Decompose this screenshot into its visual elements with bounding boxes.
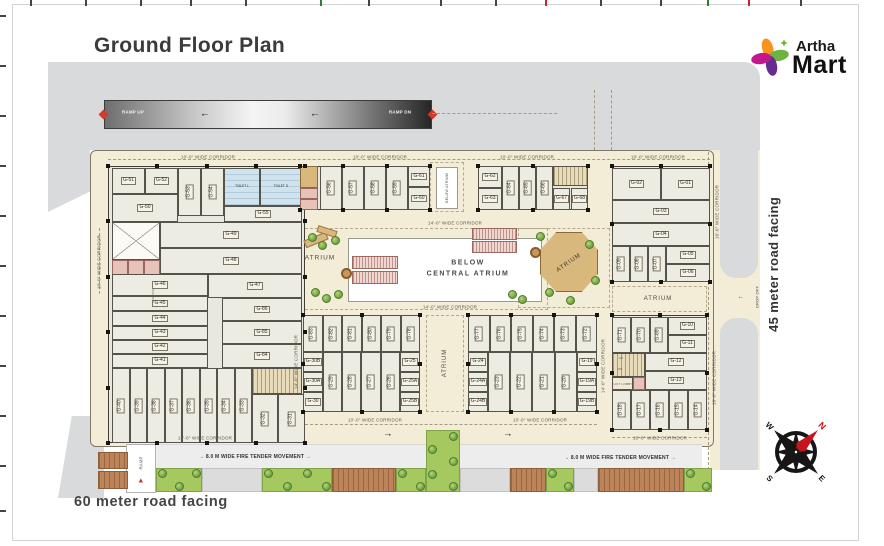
dashed-guide	[305, 424, 597, 425]
room-g-63: G-63	[478, 188, 502, 210]
room-label: G-84	[254, 352, 269, 360]
room-g-54: G-54	[201, 168, 224, 216]
pillar	[106, 275, 110, 279]
planter-icon	[341, 268, 352, 279]
pillar	[303, 164, 307, 168]
room-g-75: G-75	[511, 315, 533, 352]
room-g-31: G-31	[278, 394, 305, 443]
pillar	[301, 362, 305, 366]
room-label: G-11	[680, 340, 695, 348]
edge-tick	[600, 0, 602, 6]
compass-icon: N E S W	[756, 412, 836, 492]
edge-tick	[495, 0, 497, 6]
room-label: G-80	[367, 326, 375, 341]
edge-tick	[0, 510, 6, 512]
room-label: G-81	[348, 326, 356, 341]
room-label: G-32	[261, 411, 269, 426]
room-g-26: G-26	[381, 352, 400, 412]
pillar	[595, 313, 599, 317]
room-label: G-37	[169, 398, 177, 413]
room-g-08: G-08	[630, 246, 648, 282]
plan-label: ATRIUM	[305, 255, 335, 262]
edge-tick	[800, 0, 802, 6]
plan-label: ←	[310, 109, 320, 120]
room-g-48: G-48	[160, 248, 302, 274]
room-label: G-58	[371, 180, 379, 195]
room-g-29: G-29	[323, 352, 342, 412]
pillar	[476, 208, 480, 212]
room-label: G-04	[653, 231, 668, 239]
room-g-41: G-41	[112, 354, 208, 368]
room-label: G-33	[239, 398, 247, 413]
room-label: G-53	[186, 184, 194, 199]
edge-tick	[85, 0, 87, 6]
room-label: G-19B	[578, 398, 596, 406]
room-g-39: G-39	[130, 368, 148, 443]
room-lift	[633, 377, 645, 390]
room-label: TOILET G	[273, 185, 289, 189]
room-label: G-57	[349, 180, 357, 195]
room-label: G-21	[540, 374, 548, 389]
room-g-58: G-58	[364, 166, 386, 210]
plan-label: 10'-0" WIDE CORRIDOR	[513, 418, 567, 423]
pillar	[466, 313, 470, 317]
room-label: G-20	[562, 374, 570, 389]
pillar	[106, 330, 110, 334]
room-label: G-03	[653, 208, 668, 216]
room-label: G-30B	[304, 358, 322, 366]
room-label: G-74	[539, 326, 547, 341]
edge-tick	[0, 415, 6, 417]
room-g-11: G-11	[668, 335, 707, 353]
compass-s: S	[764, 473, 775, 484]
pillar	[708, 280, 712, 284]
edge-tick	[320, 0, 322, 6]
plan-label: 10'-0" WIDE CORRIDOR	[348, 418, 402, 423]
room-toilet l: TOILET L	[224, 168, 260, 206]
room-g-81: G-81	[342, 315, 362, 352]
pinwheel-icon	[750, 32, 794, 78]
pillar	[301, 313, 305, 317]
room-label: G-78	[406, 326, 414, 341]
room-g-85: G-85	[222, 321, 302, 344]
room-g-25b: G-25B	[400, 392, 420, 412]
room-g-06: G-06	[666, 264, 710, 282]
room-label: G-02	[629, 180, 644, 188]
road-label-right: 45 meter road facing	[766, 197, 781, 332]
room-label: G-75	[518, 326, 526, 341]
edge-tick	[545, 0, 547, 6]
room-label: G-36	[187, 398, 195, 413]
room-g-80: G-80	[362, 315, 382, 352]
tree-icon	[158, 469, 167, 478]
pillar	[303, 275, 307, 279]
room-label: G-68	[572, 195, 587, 203]
room-g-71: G-71	[612, 317, 631, 353]
pillar	[531, 208, 535, 212]
room-g-09: G-09	[612, 246, 630, 282]
room-g-37: G-37	[165, 368, 183, 443]
tree-icon	[303, 469, 312, 478]
pillar	[155, 441, 159, 445]
edge-tick	[0, 315, 6, 317]
landscape-deckp	[98, 471, 128, 489]
pillar	[303, 330, 307, 334]
room-label: G-34	[222, 398, 230, 413]
room-g-24b: G-24B	[468, 392, 488, 412]
plan-label: ←	[737, 294, 744, 301]
room-g-74: G-74	[533, 315, 555, 352]
room-g-05: G-05	[666, 246, 710, 264]
room-label: G-29	[329, 374, 337, 389]
pillar	[360, 313, 364, 317]
edge-tick	[0, 365, 6, 367]
room-label: G-70	[637, 327, 645, 342]
room-label: G-28	[348, 374, 356, 389]
room-g-76: G-76	[490, 315, 512, 352]
edge-tick	[140, 0, 142, 6]
room-label: G-12	[668, 358, 683, 366]
pillar	[610, 280, 614, 284]
room-label: G-24B	[469, 398, 487, 406]
room-label: G-25A	[401, 378, 419, 386]
room-g-46: G-46	[112, 274, 208, 296]
page-title: Ground Floor Plan	[94, 34, 285, 58]
plan-label: 10'-0" WIDE CORRIDOR	[97, 235, 102, 289]
room-g-27: G-27	[361, 352, 381, 412]
pillar	[303, 441, 307, 445]
pillar	[428, 208, 432, 212]
tree-icon	[686, 469, 695, 478]
plan-label: DROP OFF	[755, 286, 760, 308]
room-label: G-54	[209, 184, 217, 199]
room-label: G-18	[618, 402, 626, 417]
room-stair	[553, 166, 588, 186]
room-label: G-61	[411, 173, 426, 181]
tree-icon	[508, 290, 517, 299]
room-g-65: G-65	[519, 166, 536, 210]
pillar	[106, 386, 110, 390]
edge-tick	[707, 0, 709, 6]
room-g-84: G-84	[222, 344, 302, 368]
pillar	[341, 208, 345, 212]
plan-label: 10'-0" WIDE CORRIDOR	[500, 155, 554, 160]
room-label: G-62	[482, 173, 497, 181]
pillar	[610, 164, 614, 168]
room-label: G-06	[680, 269, 695, 277]
pillar	[610, 371, 614, 375]
room-g-52: G-52	[145, 168, 178, 194]
room-label: G-24	[470, 358, 485, 366]
room-g-15: G-15	[669, 390, 688, 430]
room-label: G-46	[152, 281, 167, 289]
tree-icon	[264, 469, 273, 478]
tree-icon	[322, 294, 331, 303]
plan-label: 10'-0" WIDE CORRIDOR	[178, 436, 232, 441]
room-g-33: G-33	[235, 368, 253, 443]
pillar	[595, 362, 599, 366]
room-g-03: G-03	[612, 200, 710, 223]
room-g-24a: G-24A	[468, 372, 488, 392]
pillar	[509, 410, 513, 414]
tree-icon	[536, 232, 545, 241]
room-label: G-82	[328, 326, 336, 341]
plan-label: LIFT LOBBY	[614, 382, 633, 386]
room-g-45: G-45	[112, 296, 208, 311]
plan-label: → 8.0 M WIDE FIRE TENDER MOVEMENT →	[199, 454, 311, 460]
room-g-67: G-67	[553, 188, 570, 210]
room-g-24: G-24	[468, 352, 488, 372]
room-label: G-13	[668, 377, 683, 385]
plan-label: ATRIUM	[644, 296, 673, 302]
plan-label: →	[383, 429, 393, 440]
room-g-35: G-35	[200, 368, 218, 443]
room-g-30b: G-30B	[303, 352, 323, 372]
pillar	[708, 164, 712, 168]
pillar	[476, 164, 480, 168]
room-label: G-19A	[578, 378, 596, 386]
room-lift	[300, 199, 318, 210]
room-g-70: G-70	[631, 317, 650, 353]
tree-icon	[428, 470, 437, 479]
pillar	[298, 208, 302, 212]
room-label: G-71	[618, 327, 626, 342]
room-g-16: G-16	[650, 390, 669, 430]
room-label: G-40	[117, 398, 125, 413]
pillar	[466, 410, 470, 414]
plan-label: →	[503, 429, 513, 440]
tree-icon	[564, 482, 573, 491]
tree-icon	[308, 233, 317, 242]
pillar	[385, 208, 389, 212]
room-label: G-86	[254, 306, 269, 314]
tree-icon	[322, 482, 331, 491]
landscape-deckp	[98, 452, 128, 469]
room-g-25: G-25	[400, 352, 420, 372]
room-label: G-65	[524, 180, 532, 195]
room-label: G-72	[582, 326, 590, 341]
edge-tick	[0, 15, 6, 17]
room-g-30: G-30	[303, 392, 323, 412]
room-label: G-08	[635, 256, 643, 271]
room-label: G-16	[656, 402, 664, 417]
room-label: G-39	[134, 398, 142, 413]
room-esc	[472, 241, 517, 253]
room-g-66: G-66	[536, 166, 553, 210]
room-g-19b: G-19B	[577, 392, 597, 412]
plan-label: CENTRAL ATRIUM	[427, 271, 510, 278]
brand-logo: Artha Mart	[750, 32, 870, 88]
room-g-79: G-79	[381, 315, 401, 352]
room-label: G-27	[367, 374, 375, 389]
room-g-21: G-21	[532, 352, 555, 412]
room-label: G-64	[507, 180, 515, 195]
plan-label: BELOW ATRIUM	[445, 173, 449, 203]
room-label: G-73	[561, 326, 569, 341]
pillar	[301, 410, 305, 414]
room-label: G-85	[254, 329, 269, 337]
tree-icon	[518, 295, 527, 304]
edge-tick	[748, 0, 750, 6]
tree-icon	[449, 482, 458, 491]
edge-tick	[660, 0, 662, 6]
pillar	[708, 222, 712, 226]
pillar	[658, 313, 662, 317]
pillar	[418, 410, 422, 414]
room-label: G-14	[694, 402, 702, 417]
edge-tick	[0, 265, 6, 267]
room-g-51: G-51	[112, 168, 145, 194]
pillar	[205, 441, 209, 445]
tree-icon	[416, 482, 425, 491]
plan-label: 10'-0" WIDE CORRIDOR	[181, 155, 235, 160]
plan-label: 10'-0" WIDE CORRIDOR	[631, 155, 685, 160]
landscape-deckp	[598, 468, 684, 492]
plan-label: RAMP	[139, 457, 144, 470]
pillar	[705, 313, 709, 317]
edge-tick	[0, 115, 6, 117]
pillar	[418, 313, 422, 317]
plan-label: 14'-0" WIDE CORRIDOR	[423, 305, 477, 310]
pillar	[610, 428, 614, 432]
room-label: G-24A	[469, 378, 487, 386]
pillar	[385, 164, 389, 168]
room-label: TOILET L	[234, 185, 250, 189]
room-label: G-42	[152, 343, 167, 351]
tree-icon	[175, 482, 184, 491]
room-stair	[612, 353, 645, 377]
room-label: G-38	[152, 398, 160, 413]
room-g-53: G-53	[178, 168, 201, 216]
pillar	[552, 313, 556, 317]
room-label: G-56	[327, 180, 335, 195]
room-label: G-48	[223, 257, 238, 265]
tree-icon	[428, 445, 437, 454]
landscape-deckp	[510, 468, 546, 492]
pillar	[595, 410, 599, 414]
room-g-20: G-20	[555, 352, 577, 412]
edge-tick	[190, 0, 192, 6]
room-g-57: G-57	[342, 166, 364, 210]
room-label: G-49	[223, 231, 238, 239]
dashed-guide	[594, 90, 595, 150]
room-g-17: G-17	[631, 390, 650, 430]
room-label: G-43	[152, 329, 167, 337]
room-label: G-30	[305, 398, 320, 406]
room-esc	[472, 228, 517, 240]
landscape-deckp	[332, 468, 396, 492]
room-g-02: G-02	[612, 168, 661, 200]
room-g-44: G-44	[112, 311, 208, 326]
edge-tick	[0, 165, 6, 167]
room-label: G-15	[675, 402, 683, 417]
room-label: G-01	[678, 180, 693, 188]
pillar	[303, 386, 307, 390]
floor-plan-page: G-51G-52G-50G-53G-54TOILET LTOILET GG-55…	[0, 0, 884, 546]
room-g-59: G-59	[386, 166, 408, 210]
room-g-72: G-72	[576, 315, 598, 352]
room-g-62: G-62	[478, 166, 502, 188]
pillar	[466, 362, 470, 366]
room-label: G-31	[288, 411, 296, 426]
plan-label: RAMP UP	[122, 110, 144, 115]
landscape-walk	[202, 468, 262, 492]
pillar	[659, 164, 663, 168]
tree-icon	[398, 469, 407, 478]
pillar	[531, 164, 535, 168]
edge-tick	[0, 215, 6, 217]
tree-icon	[334, 290, 343, 299]
room-toilet g: TOILET G	[260, 168, 302, 206]
room-g-86: G-86	[222, 298, 302, 321]
room-label: G-17	[637, 402, 645, 417]
tree-icon	[311, 288, 320, 297]
plan-label: ATRIUM	[442, 349, 448, 378]
pillar	[610, 313, 614, 317]
pillar	[106, 164, 110, 168]
room-label: G-60	[411, 195, 426, 203]
edge-tick	[440, 0, 442, 6]
room-esc	[352, 256, 398, 269]
room-label: G-35	[204, 398, 212, 413]
planter-icon	[530, 247, 541, 258]
pillar	[705, 428, 709, 432]
room-g-47: G-47	[208, 274, 302, 298]
plan-label: UP	[619, 356, 624, 360]
room-g-19a: G-19A	[577, 372, 597, 392]
pillar	[509, 313, 513, 317]
pillar	[658, 428, 662, 432]
room-g-12: G-12	[645, 353, 707, 371]
room-label: G-23	[495, 374, 503, 389]
plan-label: 14'-0" WIDE CORRIDOR	[428, 221, 482, 226]
room-g-73: G-73	[554, 315, 576, 352]
room-label: G-51	[121, 177, 136, 185]
room-g-49: G-49	[160, 222, 302, 248]
landscape-walk	[460, 468, 510, 492]
room-g-22: G-22	[510, 352, 532, 412]
plan-label: BELOW	[451, 260, 485, 267]
plan-label: DN	[618, 367, 623, 371]
room-label: G-10	[680, 322, 695, 330]
room-label: G-44	[152, 315, 167, 323]
room-g-14: G-14	[688, 390, 707, 430]
pillar	[428, 164, 432, 168]
room-g-10: G-10	[668, 317, 707, 335]
room-label: G-19	[579, 358, 594, 366]
room-label: G-66	[541, 180, 549, 195]
room-g-68: G-68	[571, 188, 588, 210]
pillar	[705, 371, 709, 375]
room-g-28: G-28	[342, 352, 361, 412]
room-label: G-22	[517, 374, 525, 389]
room-label: G-55	[255, 210, 270, 218]
room-g-07: G-07	[648, 246, 666, 282]
room-g-42: G-42	[112, 340, 208, 354]
room-deck	[300, 166, 318, 188]
room-label: G-25B	[401, 398, 419, 406]
room-esc	[352, 271, 398, 284]
tree-icon	[449, 457, 458, 466]
room-label: G-07	[653, 256, 661, 271]
room-label: G-69	[655, 327, 663, 342]
room-label: G-47	[247, 282, 262, 290]
room-g-61: G-61	[408, 166, 430, 187]
pillar	[341, 164, 345, 168]
pillar	[106, 219, 110, 223]
room-label: G-05	[680, 251, 695, 259]
room-label: G-59	[393, 180, 401, 195]
